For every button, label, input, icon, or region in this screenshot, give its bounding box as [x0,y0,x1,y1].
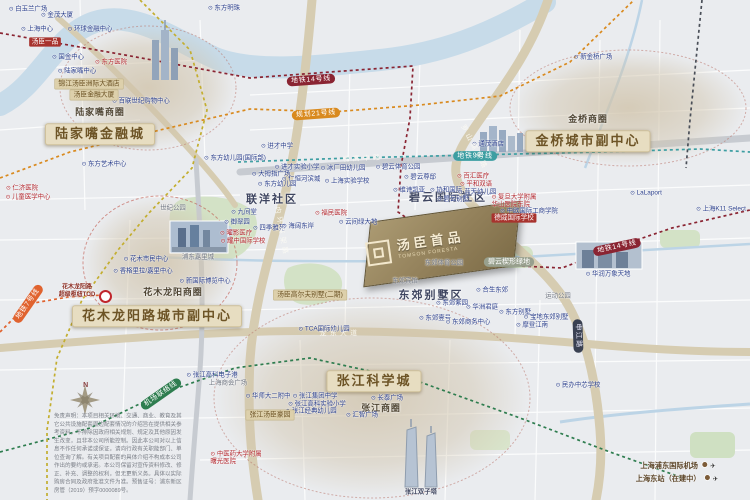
district-pill: 张江科学城 [326,370,421,392]
map-label: 中医药大学附属曙光医院 [210,450,261,465]
map-label: 德威国际学校 [492,213,537,222]
map-label: 东方艺术中心 [82,160,127,168]
map-label: 东方明珠 [208,4,240,12]
map-label: 联洋社区 [246,193,298,206]
map-label: 华润万象天地 [586,270,631,278]
map-label: 汤臣一品 [29,37,61,46]
map-label: 上海实验学校 [325,177,370,185]
map-label: 进才中学 [261,142,293,150]
map-label: 东郊紫园 [436,299,468,307]
map-label: 汤臣高尔夫别墅(二期) [273,290,347,301]
map-label: 耀中国际学校 [221,237,266,245]
map-label: 碧云别墅 [437,195,469,203]
map-label: 百汇医疗 [457,172,489,180]
map-label: 张江双子塔 [405,488,437,496]
map-label: 东郊商务中心 [446,318,491,326]
map-label: 东方幼儿园 [258,180,296,188]
airport-dot-icon [704,474,710,480]
map-label: 维诗凯亚 [393,186,425,194]
map-label: 花木龙阳路超级枢纽TOD [59,284,96,298]
map-label: 东郊宾馆 [392,277,418,285]
map-label: 地铁14号线 [287,73,336,86]
map-label: 百联世纪购物中心 [112,97,170,105]
map-label: 地铁14号线 [592,237,641,257]
map-label: 机场联络线 [139,377,183,412]
map-label: 花木市民中心 [124,255,169,263]
map-label: 金茂大厦 [41,11,73,19]
district-pill: 花木龙阳路城市副中心 [72,305,242,327]
map-label: 世纪公园 [160,204,186,212]
map-label: 运动公园 [545,292,571,300]
labels-layer: 陆家嘴金融城金桥城市副中心花木龙阳路城市副中心张江科学城陆家嘴商圈金桥商圈花木龙… [0,0,750,500]
map-label: 御翠园 [224,218,250,226]
map-label: 碧云体育公园 [376,163,421,171]
map-label: 张江集团中学 [293,392,338,400]
map-label: 儿童医学中心 [6,193,51,201]
map-label: LaLaport [630,189,662,197]
map-label: 九间堂 [231,208,257,216]
map-label: 汇智广场 [346,411,378,419]
map-label: 云间绿大地 [339,218,377,226]
map-label: 摩登江南 [516,321,548,329]
map-label: 合生东郊 [476,286,508,294]
map-label: 环球金融中心 [68,25,113,33]
map-label: 东郊体育公园 [425,259,463,267]
map-root: 汤臣首品 TOMSON FORESTA N 免责声明：本项目相关环境、交通、商业… [0,0,750,500]
district-pill: 金桥城市副中心 [525,130,650,152]
map-label: 华洲君庭 [466,303,498,311]
map-label: 罗山高架路 [458,124,489,173]
map-label: 香格里拉/嘉里中心 [113,267,172,275]
map-label: 碧云尊邸 [404,173,436,181]
map-label: 福民医院 [315,209,347,217]
map-label: 申江路 [573,319,584,353]
map-label: 宝地东郊别墅 [524,313,569,321]
map-label: 汤臣金融大厦 [70,90,119,101]
map-label: 上海中心 [21,25,53,33]
map-label: 新金桥广场 [574,53,612,61]
map-label: 东方幼儿园(国际部) [204,154,266,162]
map-label: 碧云楔形绿地 [484,257,534,267]
map-label: 华师大二附中 [246,392,291,400]
map-label: 冰厂田幼儿园 [321,164,366,172]
map-label: 上海浦东国际机场✈ [640,461,715,470]
map-label: 东方医院 [95,58,127,66]
map-label: 上海K11 Select [696,205,746,213]
map-label: 上海东站（在建中）✈ [636,474,718,483]
map-label: 仁济医院 [6,184,38,192]
map-label: 龙东大道 [320,330,361,339]
map-label: 东郊壹号 [419,314,451,322]
map-label: 张江高科电子港 [186,371,237,379]
map-label: 陆家嘴中心 [58,67,96,75]
map-label: 锦江汤臣洲际大酒店 [54,79,123,90]
map-label: 国金中心 [52,53,84,61]
airplane-icon: ✈ [713,475,718,482]
map-label: 浦东嘉里城 [182,253,214,261]
map-label: 新国际博览中心 [179,277,230,285]
map-label: 陆家嘴商圈 [75,108,125,119]
map-label: 规划21号线 [292,107,341,120]
map-label: 海阔东岸 [282,222,314,230]
map-label: 复旦大学附属华山医院东院 [492,193,537,208]
map-label: 金桥商圈 [568,115,608,126]
map-label: 内环高架路 [273,206,290,258]
district-pill: 陆家嘴金融城 [45,123,155,145]
map-label: 地铁7号线 [11,283,44,324]
map-label: 上海商会广场 [209,379,247,387]
map-label: 张江汤臣豪园 [246,410,295,421]
airport-dot-icon [702,461,708,467]
map-label: 花木龙阳商圈 [143,288,202,299]
airplane-icon: ✈ [710,462,715,469]
map-label: 平和双语 [460,180,492,188]
map-label: 曜影医疗 [220,229,252,237]
map-label: 长泰广场 [371,394,403,402]
map-label: 民办中芯学校 [556,381,601,389]
